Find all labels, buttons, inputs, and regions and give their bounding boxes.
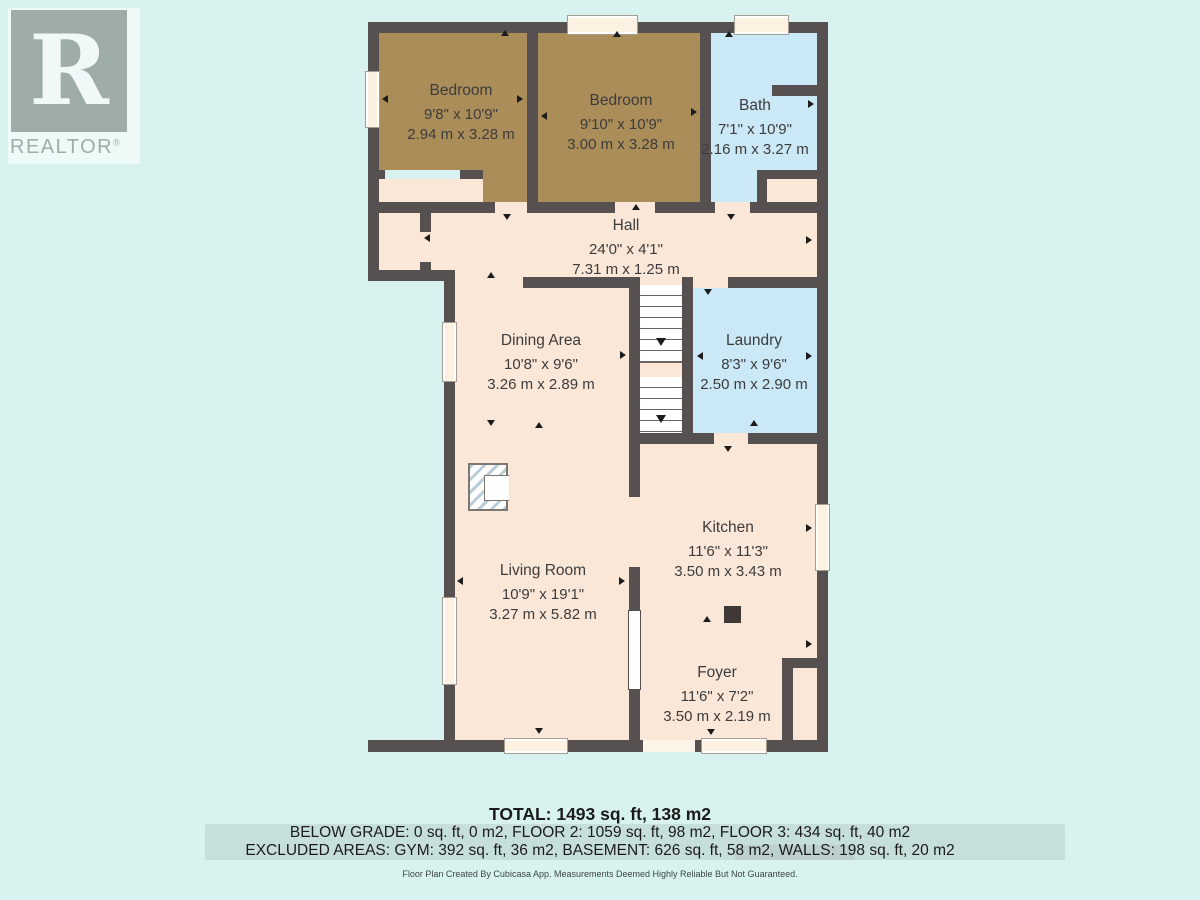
room-label-living-room: Living Room 10'9" x 19'1" 3.27 m x 5.82 … — [453, 561, 633, 625]
direction-arrow — [501, 30, 509, 36]
disclaimer-text: Floor Plan Created By Cubicasa App. Meas… — [0, 869, 1200, 879]
summary-excluded: EXCLUDED AREAS: GYM: 392 sq. ft, 36 m2, … — [0, 842, 1200, 860]
wall-segment — [368, 22, 379, 281]
wall-segment — [757, 170, 767, 202]
direction-arrow — [535, 422, 543, 428]
wall-segment — [695, 740, 702, 752]
wall-segment — [368, 740, 505, 752]
direction-arrow — [487, 420, 495, 426]
area-summary: TOTAL: 1493 sq. ft, 138 m2 BELOW GRADE: … — [0, 804, 1200, 859]
direction-arrow — [487, 272, 495, 278]
kitchen-fixture — [724, 606, 741, 623]
wall-segment — [629, 433, 714, 444]
room-floor-bedroom-1 — [483, 170, 527, 202]
wall-segment — [728, 277, 828, 288]
direction-arrow — [724, 446, 732, 452]
front-door-opening — [643, 740, 695, 752]
room-label-laundry: Laundry 8'3" x 9'6" 2.50 m x 2.90 m — [664, 331, 844, 395]
wall-segment — [527, 202, 615, 213]
wall-segment — [420, 262, 431, 281]
direction-arrow — [535, 728, 543, 734]
window — [568, 16, 637, 34]
direction-arrow — [704, 289, 712, 295]
window — [366, 72, 379, 127]
direction-arrow — [703, 616, 711, 622]
wall-segment — [368, 202, 495, 213]
window — [505, 739, 567, 753]
floor-plan-page: { "background_color": "#d8f3ef", "brandi… — [0, 0, 1200, 900]
window — [702, 739, 766, 753]
room-label-dining-area: Dining Area 10'8" x 9'6" 3.26 m x 2.89 m — [451, 331, 631, 395]
room-label-bedroom-1: Bedroom 9'8" x 10'9" 2.94 m x 3.28 m — [381, 81, 541, 145]
fireplace-opening — [484, 475, 509, 501]
room-label-hall: Hall 24'0" x 4'1" 7.31 m x 1.25 m — [526, 216, 726, 280]
room-label-bath: Bath 7'1" x 10'9" 2.16 m x 3.27 m — [675, 96, 835, 160]
wall-segment — [420, 206, 431, 232]
direction-arrow — [424, 234, 430, 242]
fireplace-icon — [468, 463, 508, 511]
direction-arrow — [707, 729, 715, 735]
direction-arrow — [806, 640, 812, 648]
room-label-kitchen: Kitchen 11'6" x 11'3" 3.50 m x 3.43 m — [638, 518, 818, 582]
closet-floor — [767, 179, 817, 202]
direction-arrow — [806, 236, 812, 244]
summary-breakdown: BELOW GRADE: 0 sq. ft, 0 m2, FLOOR 2: 10… — [0, 824, 1200, 842]
direction-arrow — [632, 204, 640, 210]
direction-arrow — [613, 31, 621, 37]
direction-arrow — [725, 31, 733, 37]
direction-arrow — [503, 214, 511, 220]
window — [735, 16, 788, 34]
direction-arrow — [750, 420, 758, 426]
room-label-foyer: Foyer 11'6" x 7'2" 3.50 m x 2.19 m — [627, 663, 807, 727]
floor-plan-canvas: Bedroom 9'8" x 10'9" 2.94 m x 3.28 m Bed… — [0, 0, 1200, 900]
wall-segment — [368, 270, 455, 281]
stairs-down-arrow-icon — [656, 415, 666, 423]
wall-segment — [748, 433, 828, 444]
wall-segment — [567, 740, 643, 752]
wall-segment — [460, 170, 483, 179]
closet-floor — [379, 179, 483, 202]
summary-total: TOTAL: 1493 sq. ft, 138 m2 — [0, 804, 1200, 824]
direction-arrow — [727, 214, 735, 220]
